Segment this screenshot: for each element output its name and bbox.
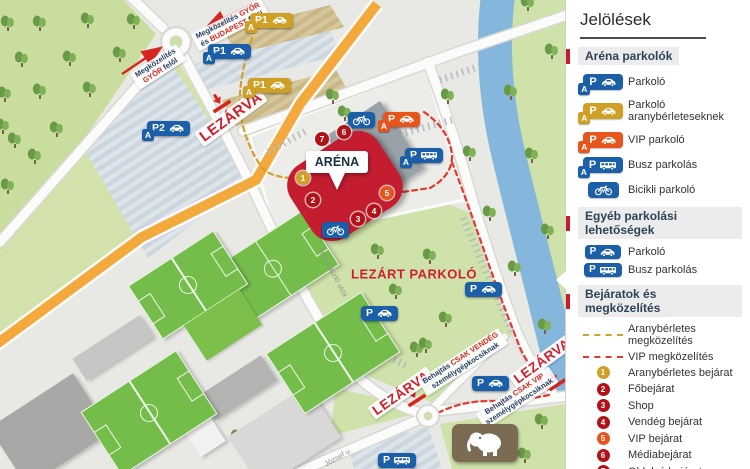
- car-icon: [271, 15, 288, 26]
- bicycle-icon: [352, 114, 371, 126]
- legend-item-icon: 2: [578, 383, 628, 396]
- car-icon: [480, 284, 497, 295]
- p-label: P: [366, 308, 373, 319]
- p-label: P: [477, 378, 484, 389]
- legend-item: Bicikli parkoló: [578, 182, 742, 198]
- legend-item-label: Parkoló: [628, 246, 665, 258]
- legend-item: VIP megközelítés: [578, 351, 742, 363]
- legend-item: 7Oldalsó bejárat: [578, 465, 742, 469]
- arena-label-bubble: ARÉNA: [306, 151, 368, 173]
- p-label: P: [383, 455, 390, 466]
- legend-section-title: Aréna parkolók: [578, 47, 679, 65]
- car-icon: [487, 378, 504, 389]
- legend-section-header: Aréna parkolók: [578, 47, 742, 65]
- bike-parking-sign: [322, 222, 349, 238]
- car-icon: [269, 80, 286, 91]
- car-icon: [600, 135, 617, 146]
- legend-item-label: VIP bejárat: [628, 433, 682, 445]
- legend-item-icon: 1: [578, 366, 628, 379]
- legend-section-title: Bejáratok és megközelítés: [578, 285, 742, 317]
- legend-title-rule: [580, 37, 706, 39]
- p-letter: P: [589, 105, 596, 117]
- p-letter: P: [589, 76, 596, 88]
- closed-parking-label: LEZÁRT PARKOLÓ: [351, 267, 477, 282]
- legend-section-header: Egyéb parkolási lehetőségek: [578, 207, 742, 239]
- legend-item-icon: [578, 182, 628, 198]
- legend-item: 3Shop: [578, 399, 742, 412]
- legend-item: PParkoló: [578, 245, 742, 259]
- legend-item-label: VIP parkoló: [628, 134, 685, 146]
- a-badge: A: [578, 141, 590, 153]
- legend-item: 4Vendég bejárat: [578, 416, 742, 429]
- a-badge: A: [378, 120, 390, 132]
- zoo-landmark-sign: [452, 424, 518, 462]
- bike-parking-sign: [348, 112, 375, 128]
- bus-parking-sign-icon: PA: [583, 157, 623, 173]
- a-badge: A: [400, 156, 412, 168]
- a-badge: A: [578, 112, 590, 124]
- a-badge: A: [578, 83, 590, 95]
- elephant-icon: [463, 428, 507, 458]
- car-parking-sign: P: [472, 376, 509, 391]
- car-parking-sign: P1A: [248, 78, 291, 93]
- entrance-marker-7: 7: [315, 132, 329, 146]
- legend-item-icon: PA: [578, 74, 628, 90]
- legend-item-label: VIP megközelítés: [628, 351, 713, 363]
- legend-item-icon: [578, 334, 628, 336]
- car-parking-sign-icon: PA: [583, 74, 622, 90]
- entrance-marker-6: 6: [337, 125, 351, 139]
- legend-item: PABusz parkolás: [578, 157, 742, 173]
- legend-item-icon: 5: [578, 432, 628, 445]
- legend-item: 5VIP bejárat: [578, 432, 742, 445]
- legend-sections: Aréna parkolókPAParkolóPAParkoló aranybé…: [578, 47, 742, 469]
- bus-parking-sign: P: [378, 453, 416, 468]
- car-icon: [599, 247, 616, 258]
- car-icon: [398, 114, 415, 125]
- legend-item-label: Aranybérletes megközelítés: [628, 323, 742, 347]
- bus-icon: [393, 455, 411, 466]
- bus-parking-sign-icon: P: [584, 263, 622, 277]
- legend-item: 1Aranybérletes bejárat: [578, 366, 742, 379]
- a-badge: A: [243, 86, 255, 98]
- section-marker: [566, 294, 570, 309]
- legend-item: Aranybérletes megközelítés: [578, 323, 742, 347]
- legend-item-icon: P: [578, 263, 628, 277]
- legend-item: 6Médiabejárat: [578, 449, 742, 462]
- legend-item-label: Parkoló aranybérleteseknek: [628, 99, 742, 123]
- p-letter: P: [589, 134, 596, 146]
- legend-item-icon: [578, 356, 628, 358]
- legend-item-label: Oldalsó bejárat: [628, 466, 702, 469]
- car-parking-sign: P1A: [208, 44, 251, 59]
- legend-item-icon: PA: [578, 132, 628, 148]
- entrance-number-icon: 2: [597, 383, 610, 396]
- bicycle-icon: [326, 224, 345, 236]
- a-badge: A: [203, 52, 215, 64]
- legend-item-icon: PA: [578, 157, 628, 173]
- legend-item-icon: 4: [578, 416, 628, 429]
- bus-icon: [599, 160, 617, 171]
- a-badge: A: [578, 166, 590, 178]
- legend-item-label: Médiabejárat: [628, 449, 692, 461]
- legend-item-label: Bicikli parkoló: [628, 184, 695, 196]
- legend-item-label: Busz parkolás: [628, 264, 697, 276]
- car-parking-sign: P: [465, 282, 502, 297]
- car-parking-sign-icon: P: [585, 245, 622, 259]
- bus-icon: [420, 150, 438, 161]
- red-dashed-route-icon: [583, 356, 623, 358]
- legend-item-icon: P: [578, 245, 628, 259]
- car-icon: [229, 46, 246, 57]
- car-parking-sign-icon: PA: [583, 103, 622, 119]
- car-parking-sign-icon: PA: [583, 132, 622, 148]
- car-icon: [600, 77, 617, 88]
- legend-item: PBusz parkolás: [578, 263, 742, 277]
- legend-item-icon: PA: [578, 103, 628, 119]
- car-parking-sign: P: [361, 306, 398, 321]
- section-marker: [566, 216, 570, 231]
- entrance-number-icon: 5: [597, 432, 610, 445]
- entrance-marker-2: 2: [306, 193, 320, 207]
- bus-parking-sign: PA: [405, 148, 443, 163]
- entrance-number-icon: 3: [597, 399, 610, 412]
- arena-parking-map-infographic: ARÉNA P1AP1AP1AP2APAPAPPPP7612345LEZÁRVA…: [0, 0, 750, 469]
- entrance-number-icon: 7: [597, 465, 610, 469]
- legend-panel: Jelölések Aréna parkolókPAParkolóPAParko…: [565, 0, 750, 469]
- legend-item-icon: 3: [578, 399, 628, 412]
- legend-item-icon: 7: [578, 465, 628, 469]
- legend-item: PAVIP parkoló: [578, 132, 742, 148]
- a-badge: A: [245, 21, 257, 33]
- legend-section-title: Egyéb parkolási lehetőségek: [578, 207, 742, 239]
- legend-section-header: Bejáratok és megközelítés: [578, 285, 742, 317]
- legend-item: PAParkoló: [578, 74, 742, 90]
- legend-item-label: Főbejárat: [628, 383, 674, 395]
- legend-item-label: Parkoló: [628, 76, 665, 88]
- car-icon: [168, 123, 185, 134]
- a-badge: A: [142, 129, 154, 141]
- entrance-number-icon: 4: [597, 416, 610, 429]
- bus-icon: [599, 265, 617, 276]
- legend-item-label: Aranybérletes bejárat: [628, 367, 733, 379]
- legend-title: Jelölések: [580, 10, 742, 30]
- entrance-marker-3: 3: [351, 212, 365, 226]
- entrance-marker-1: 1: [296, 171, 310, 185]
- p-letter: P: [590, 246, 597, 258]
- legend-item-label: Busz parkolás: [628, 159, 697, 171]
- car-parking-sign: P1A: [250, 13, 293, 28]
- p-letter: P: [589, 159, 596, 171]
- p-letter: P: [589, 264, 596, 276]
- legend-item-label: Shop: [628, 400, 654, 412]
- section-marker: [566, 49, 570, 64]
- entrance-marker-4: 4: [367, 204, 381, 218]
- legend-item: PAParkoló aranybérleteseknek: [578, 99, 742, 123]
- car-parking-sign: PA: [383, 112, 420, 127]
- gold-dashed-route-icon: [583, 334, 623, 336]
- car-icon: [600, 106, 617, 117]
- map-canvas: ARÉNA P1AP1AP1AP2APAPAPPPP7612345LEZÁRVA…: [0, 0, 565, 469]
- entrance-number-icon: 6: [597, 449, 610, 462]
- entrance-number-icon: 1: [597, 366, 610, 379]
- car-icon: [376, 308, 393, 319]
- car-parking-sign: P2A: [147, 121, 190, 136]
- p-label: P: [470, 284, 477, 295]
- legend-item-label: Vendég bejárat: [628, 416, 702, 428]
- legend-pointer-notch: [556, 271, 566, 289]
- bike-parking-sign-icon: [588, 182, 619, 198]
- bicycle-icon: [594, 184, 613, 196]
- entrance-marker-5: 5: [380, 186, 394, 200]
- legend-item: 2Főbejárat: [578, 383, 742, 396]
- legend-item-icon: 6: [578, 449, 628, 462]
